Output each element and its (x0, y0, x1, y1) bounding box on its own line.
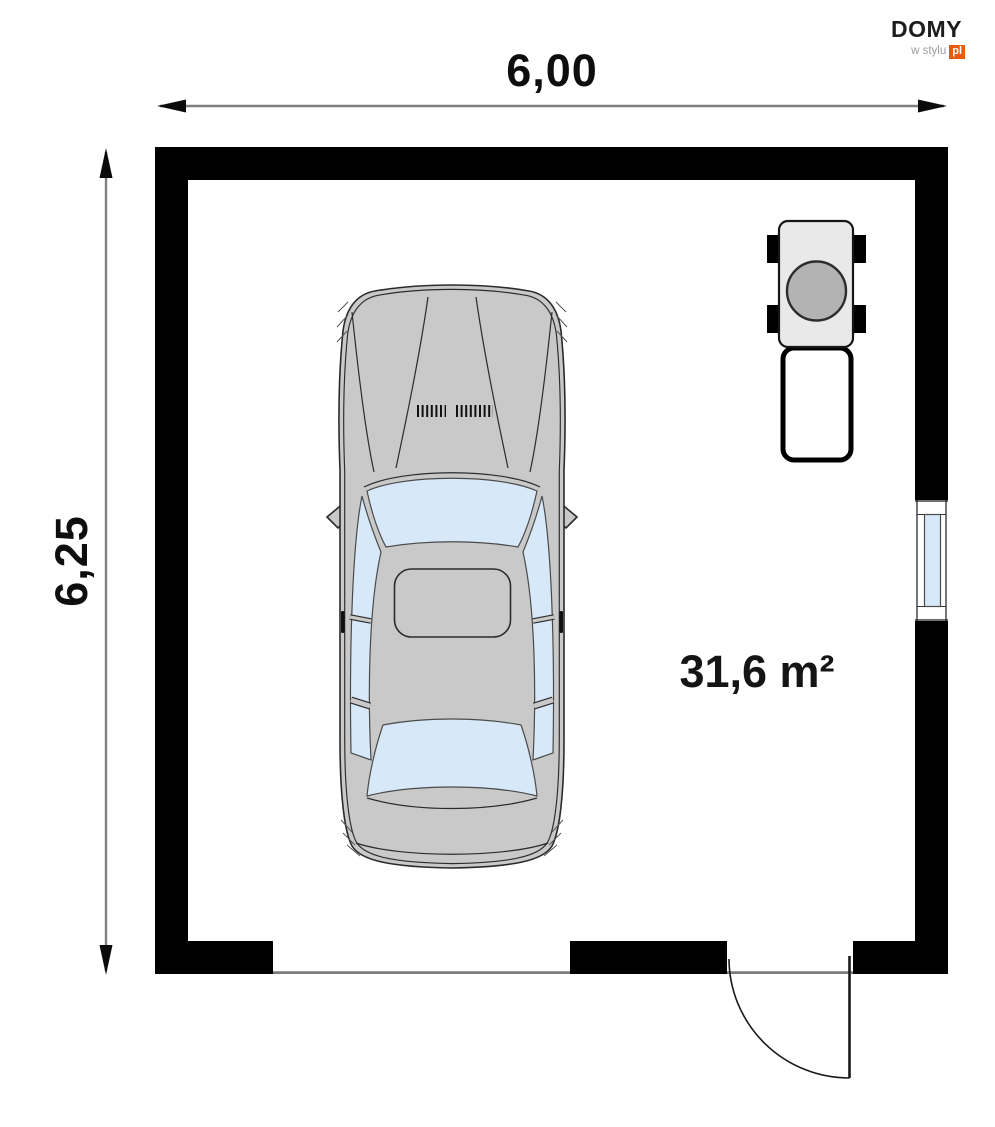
brand-name: DOMY (815, 18, 962, 41)
car-door-handle-left (341, 611, 345, 633)
brand-tagline: w stylu (911, 45, 946, 57)
wall-top (155, 147, 948, 180)
car-icon (327, 285, 577, 868)
dimension-arrow-down-icon (100, 945, 113, 975)
car-door-handle-right (560, 611, 564, 633)
height-dimension-label: 6,25 (47, 411, 97, 711)
window-symbol (915, 500, 948, 621)
brand-tagline-row: w stylupl (815, 42, 965, 59)
height-dimension-line (100, 148, 113, 975)
wall-bottom-left-pier (155, 941, 273, 974)
entry-door-symbol (729, 956, 850, 1078)
floor-plan-drawing (0, 0, 995, 1127)
wall-right-upper (915, 147, 948, 500)
wall-right-lower (915, 621, 948, 974)
car-windshield (367, 478, 537, 547)
wall-left (155, 147, 188, 974)
brand-suffix-badge: pl (949, 45, 965, 59)
width-dimension-label: 6,00 (402, 46, 702, 96)
entry-door-swing-arc (729, 959, 850, 1078)
brand-logo: DOMY w stylupl (815, 18, 965, 59)
dimension-arrow-up-icon (100, 148, 113, 178)
dimension-arrow-right-icon (918, 100, 947, 113)
wall-bottom-middle-pier (570, 941, 727, 974)
floor-plan-page: 6,00 6,25 31,6 m² DOMY w stylupl (0, 0, 995, 1127)
boiler-tank (783, 348, 851, 460)
dimension-arrow-left-icon (157, 100, 186, 113)
area-label: 31,6 m² (607, 647, 907, 697)
width-dimension-line (157, 100, 947, 113)
car-sunroof (395, 569, 511, 637)
boiler-burner (787, 262, 846, 321)
car-rear-window (367, 719, 537, 796)
wall-bottom-right-pier (853, 941, 948, 974)
boiler-icon (767, 221, 866, 460)
window-glass-pane (925, 515, 941, 607)
